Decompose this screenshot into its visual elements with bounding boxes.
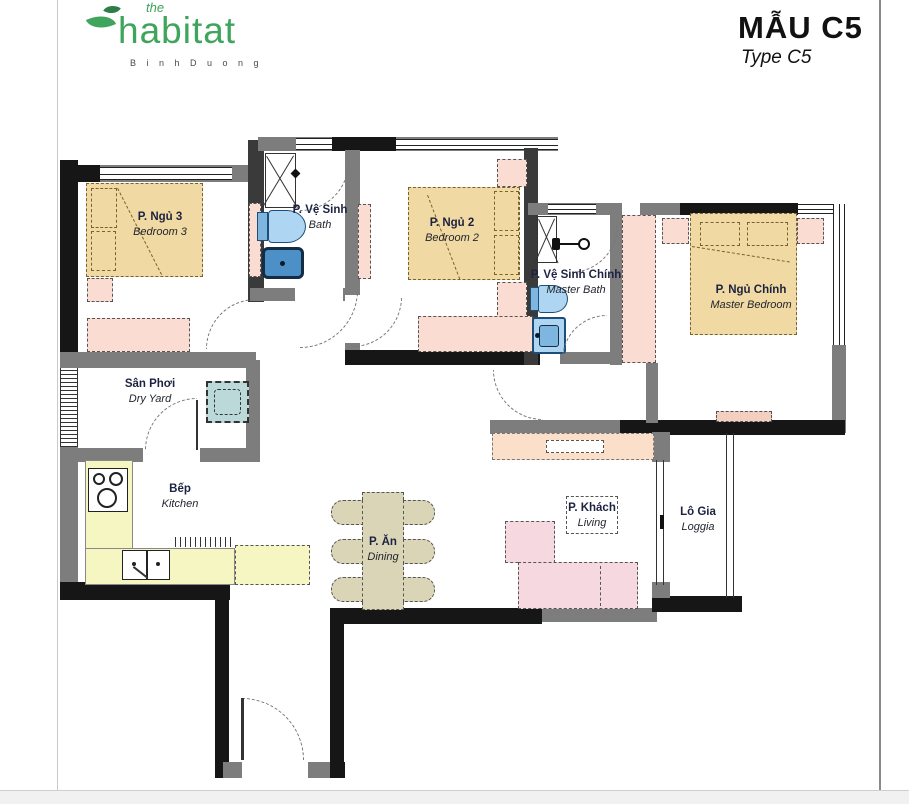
room-label-master-bath: P. Vệ Sinh Chính Master Bath bbox=[531, 268, 622, 297]
room-name-en: Dining bbox=[367, 550, 398, 564]
logo-location: B i n h D u o n g bbox=[130, 58, 263, 68]
room-name-vi: Bếp bbox=[162, 482, 199, 497]
wall-segment bbox=[332, 137, 396, 151]
room-label-dining: P. Ăn Dining bbox=[367, 535, 398, 564]
logo: the habitat B i n h D u o n g bbox=[58, 2, 278, 74]
corner-window bbox=[833, 204, 845, 345]
bench bbox=[716, 411, 772, 422]
page-right-border bbox=[879, 0, 881, 792]
louver-window bbox=[60, 365, 78, 449]
room-label-dry-yard: Sân Phơi Dry Yard bbox=[125, 377, 175, 406]
page-left-border bbox=[57, 0, 58, 792]
door-gap bbox=[143, 448, 200, 462]
room-name-vi: Lô Gia bbox=[680, 505, 716, 520]
dining-chair bbox=[331, 577, 363, 602]
room-name-vi: P. Ngủ 3 bbox=[133, 210, 187, 225]
dining-chair bbox=[331, 500, 363, 525]
room-name-en: Bedroom 2 bbox=[425, 231, 479, 245]
loggia-railing bbox=[733, 433, 734, 598]
basin-faucet bbox=[535, 333, 540, 338]
wall-segment bbox=[60, 447, 78, 599]
room-name-vi: P. Vệ Sinh Chính bbox=[531, 268, 622, 283]
basin-drain bbox=[280, 261, 285, 266]
dining-chair bbox=[403, 539, 435, 564]
burner bbox=[97, 488, 117, 508]
sliding-door-handle bbox=[660, 515, 664, 529]
burner bbox=[93, 473, 105, 485]
room-label-bedroom2: P. Ngủ 2 Bedroom 2 bbox=[425, 216, 479, 245]
room-label-kitchen: Bếp Kitchen bbox=[162, 482, 199, 511]
sliding-door bbox=[656, 460, 657, 585]
entrance-door-leaf bbox=[241, 698, 244, 760]
wall-segment bbox=[215, 596, 229, 776]
window bbox=[296, 138, 332, 150]
window bbox=[548, 204, 596, 214]
toilet bbox=[257, 212, 268, 241]
room-name-vi: P. Ngủ Chính bbox=[710, 283, 791, 298]
wall-segment bbox=[542, 608, 657, 622]
room-name-vi: P. Ăn bbox=[367, 535, 398, 550]
wardrobe bbox=[418, 316, 533, 352]
dining-chair bbox=[403, 500, 435, 525]
sofa bbox=[505, 521, 555, 563]
floorplan-page: the habitat B i n h D u o n g MẪU C5 Typ… bbox=[0, 0, 909, 804]
room-name-vi: P. Vệ Sinh bbox=[293, 203, 348, 218]
door-jamb bbox=[308, 762, 332, 778]
loggia-railing bbox=[726, 433, 727, 598]
room-name-en: Bedroom 3 bbox=[133, 225, 187, 239]
tv bbox=[546, 440, 604, 453]
room-name-en: Master Bath bbox=[531, 283, 622, 297]
room-label-loggia: Lô Gia Loggia bbox=[680, 505, 716, 534]
wall-segment bbox=[652, 432, 670, 462]
room-name-en: Bath bbox=[293, 218, 348, 232]
dining-chair bbox=[403, 577, 435, 602]
sofa bbox=[518, 562, 638, 609]
wall-segment bbox=[652, 582, 670, 598]
window bbox=[100, 167, 232, 180]
wall-segment bbox=[330, 608, 542, 624]
dining-chair bbox=[331, 539, 363, 564]
room-label-master-bedroom: P. Ngủ Chính Master Bedroom bbox=[710, 283, 791, 312]
room-name-en: Loggia bbox=[680, 520, 716, 534]
sink-drain bbox=[156, 562, 160, 566]
pillow bbox=[747, 222, 788, 246]
room-name-en: Dry Yard bbox=[125, 392, 175, 406]
wall-segment bbox=[652, 596, 742, 612]
pillow bbox=[91, 188, 117, 228]
wardrobe bbox=[87, 318, 190, 352]
room-label-bedroom3: P. Ngủ 3 Bedroom 3 bbox=[133, 210, 187, 239]
wall-segment bbox=[646, 363, 658, 423]
bar-counter bbox=[235, 545, 310, 585]
door-gap bbox=[242, 762, 308, 778]
room-name-en: Kitchen bbox=[162, 497, 199, 511]
room-name-vi: P. Khách bbox=[568, 501, 616, 516]
shelf bbox=[497, 159, 527, 187]
wall-segment bbox=[60, 160, 78, 365]
room-name-en: Living bbox=[568, 516, 616, 530]
wall-segment bbox=[345, 350, 540, 365]
washing-machine-drum bbox=[214, 389, 241, 415]
pillow bbox=[91, 231, 116, 271]
basin-inner bbox=[539, 325, 559, 347]
wall-segment bbox=[490, 420, 620, 434]
plan-subtitle: Type C5 bbox=[741, 47, 811, 69]
room-name-vi: P. Ngủ 2 bbox=[425, 216, 479, 231]
dish-rack bbox=[175, 537, 235, 547]
wardrobe bbox=[622, 215, 656, 363]
pillow bbox=[700, 222, 740, 246]
pillow bbox=[494, 191, 519, 231]
room-name-en: Master Bedroom bbox=[710, 298, 791, 312]
nightstand bbox=[662, 218, 689, 244]
shelf bbox=[358, 204, 371, 279]
plan-title: MẪU C5 bbox=[738, 10, 863, 46]
page-bottom-bar bbox=[0, 790, 909, 804]
logo-name: habitat bbox=[118, 10, 236, 52]
room-label-living: P. Khách Living bbox=[568, 501, 616, 530]
nightstand bbox=[87, 278, 113, 302]
wall-segment bbox=[330, 610, 344, 778]
pillow bbox=[494, 235, 519, 275]
wall-segment bbox=[60, 352, 256, 368]
door-jamb bbox=[223, 762, 242, 778]
burner bbox=[109, 472, 123, 486]
nightstand bbox=[797, 218, 824, 244]
room-name-vi: Sân Phơi bbox=[125, 377, 175, 392]
room-label-bath: P. Vệ Sinh Bath bbox=[293, 203, 348, 232]
shower-head-icon bbox=[552, 238, 560, 250]
sofa-divider bbox=[600, 566, 601, 606]
